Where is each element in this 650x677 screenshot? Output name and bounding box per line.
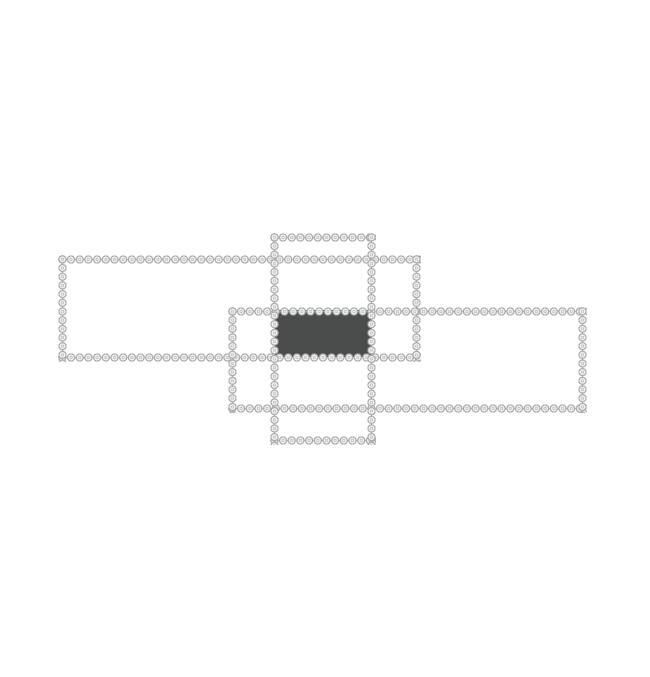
center-vertical-frame-right-edge bbox=[367, 233, 376, 445]
right-horizontal-frame-bottom-edge bbox=[228, 404, 587, 413]
right-horizontal-frame-left-edge bbox=[228, 307, 237, 413]
right-horizontal-frame-top-edge bbox=[228, 307, 587, 316]
center-vertical-frame-bottom-edge bbox=[270, 436, 376, 445]
crystal-chandelier bbox=[0, 0, 650, 677]
center-vertical-frame-top-edge bbox=[270, 233, 376, 242]
left-horizontal-frame-left-edge bbox=[58, 255, 67, 362]
right-horizontal-frame-right-edge bbox=[578, 307, 587, 413]
center-vertical-frame-left-edge bbox=[270, 233, 279, 445]
ceiling-canopy bbox=[275, 310, 372, 357]
product-photo bbox=[0, 0, 650, 677]
